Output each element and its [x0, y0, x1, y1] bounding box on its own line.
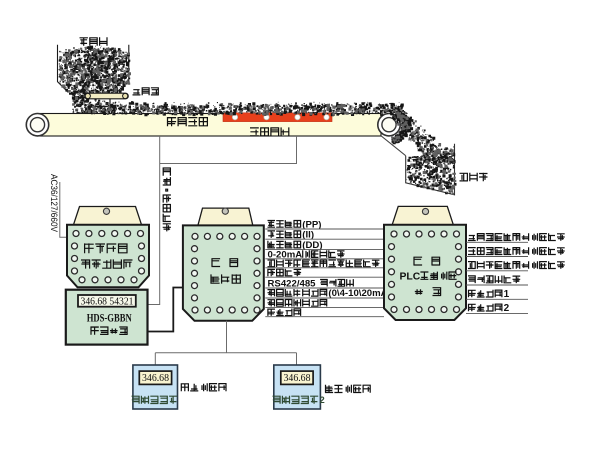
svg-text:2: 2: [320, 394, 325, 405]
svg-text:1: 1: [504, 289, 510, 300]
svg-text:346.68 54321: 346.68 54321: [81, 297, 134, 308]
svg-text:HDS-GBBN: HDS-GBBN: [87, 312, 133, 324]
svg-text:2: 2: [504, 303, 510, 314]
svg-text:346.68: 346.68: [142, 373, 169, 384]
svg-text:346.68: 346.68: [284, 373, 311, 384]
svg-text:AC36/127/660V: AC36/127/660V: [48, 174, 59, 233]
svg-text:PLC: PLC: [400, 271, 421, 282]
